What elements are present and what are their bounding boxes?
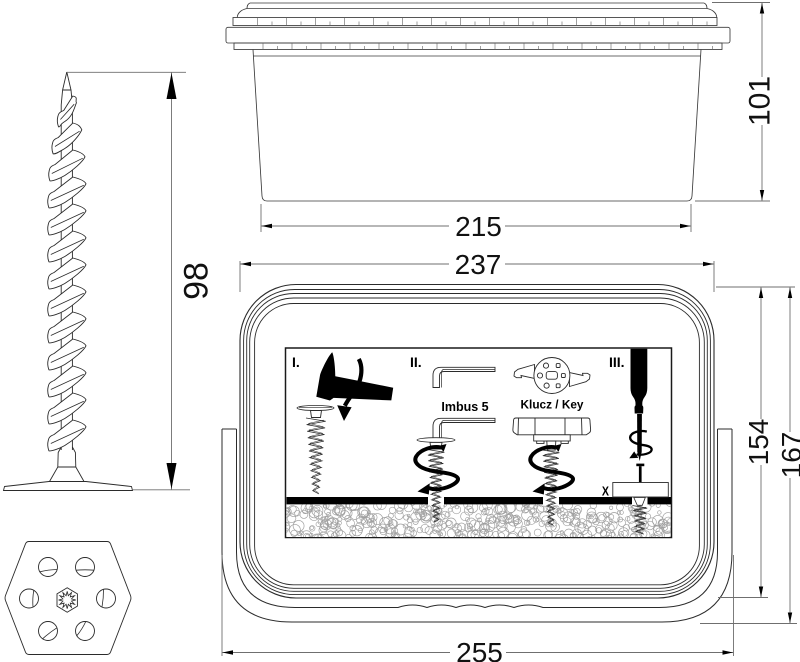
svg-text:154: 154 (743, 419, 774, 466)
svg-text:III.: III. (609, 354, 625, 370)
svg-text:Imbus 5: Imbus 5 (441, 400, 488, 414)
svg-text:167: 167 (776, 432, 800, 479)
svg-text:X: X (602, 483, 609, 498)
svg-text:Klucz / Key: Klucz / Key (521, 398, 584, 412)
svg-text:101: 101 (744, 76, 777, 126)
svg-text:237: 237 (455, 249, 502, 280)
svg-text:I.: I. (292, 354, 300, 370)
svg-text:215: 215 (455, 211, 502, 242)
svg-text:98: 98 (178, 262, 216, 300)
svg-text:255: 255 (456, 637, 503, 662)
svg-text:II.: II. (410, 354, 422, 370)
